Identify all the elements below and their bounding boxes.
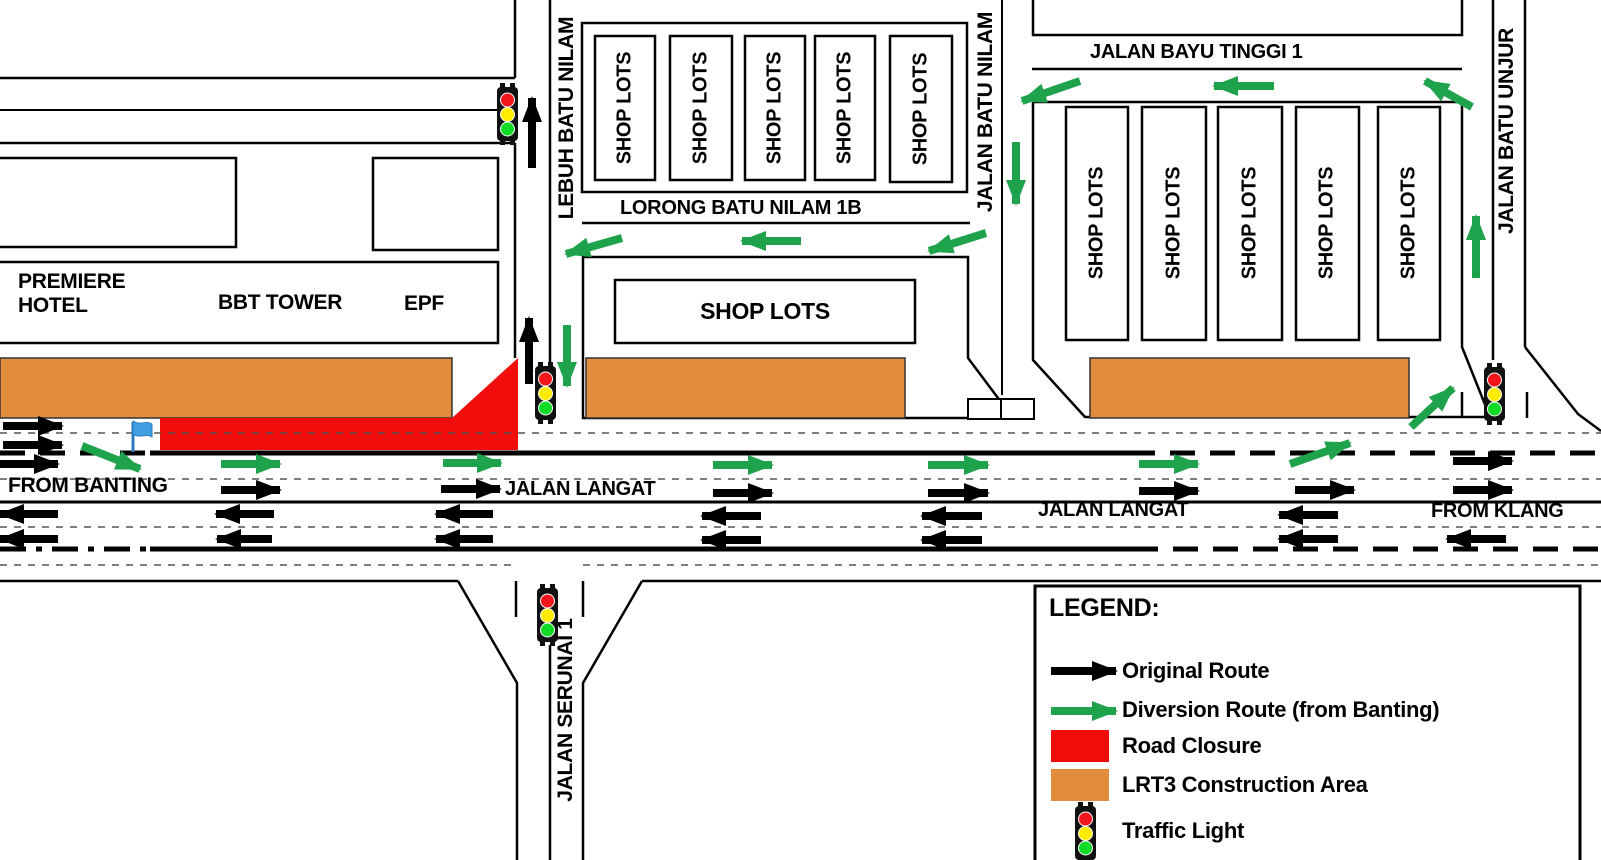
- building-box: [373, 158, 498, 250]
- legend-box: [1035, 586, 1580, 860]
- construction-area-swatch: [1051, 769, 1109, 801]
- label-shop-lots: SHOP LOTS: [1239, 167, 1262, 280]
- building-box: [0, 158, 236, 247]
- label-jalan-batu-nilam: JALAN BATU NILAM: [974, 12, 998, 212]
- label-shop-lots-center: SHOP LOTS: [615, 280, 915, 343]
- label-shop-lots: SHOP LOTS: [1086, 167, 1109, 280]
- diversion-start-flag-icon: [133, 421, 152, 452]
- label-bbt-tower: BBT TOWER: [218, 291, 342, 315]
- construction-area-west: [0, 358, 452, 418]
- label-shop-lots: SHOP LOTS: [614, 52, 637, 165]
- road-closure-swatch: [1051, 730, 1109, 762]
- building-box: [1033, 0, 1462, 35]
- label-lorong-batu-nilam-1b: LORONG BATU NILAM 1B: [620, 197, 861, 220]
- label-jalan-langat-west: JALAN LANGAT: [505, 478, 655, 501]
- traffic-light-icon: [535, 362, 556, 424]
- traffic-light-icon: [497, 83, 518, 145]
- label-shop-lots: SHOP LOTS: [690, 52, 713, 165]
- construction-area-middle: [586, 358, 905, 418]
- label-shop-lots: SHOP LOTS: [1398, 167, 1421, 280]
- construction-area-east: [1090, 358, 1409, 418]
- label-jalan-langat-east: JALAN LANGAT: [1038, 499, 1188, 522]
- label-shop-lots: SHOP LOTS: [834, 52, 857, 165]
- road-closure-triangle: [452, 358, 518, 418]
- label-from-klang: FROM KLANG: [1431, 500, 1564, 523]
- diversion-route-arrow: [929, 233, 986, 251]
- label-shop-lots: SHOP LOTS: [1163, 167, 1186, 280]
- label-jalan-serunai-1: JALAN SERUNAI 1: [554, 618, 578, 801]
- construction-areas-group: [0, 358, 1409, 418]
- diversion-route-arrow: [82, 446, 140, 469]
- label-from-banting: FROM BANTING: [8, 474, 168, 498]
- traffic-light-icon: [1075, 802, 1096, 860]
- legend-item-diversion-route: Diversion Route (from Banting): [1122, 697, 1439, 722]
- label-shop-lots: SHOP LOTS: [764, 52, 787, 165]
- legend-item-road-closure: Road Closure: [1122, 733, 1261, 758]
- road-closure-bar: [160, 418, 518, 450]
- traffic-light-icon: [1484, 363, 1505, 425]
- diversion-route-arrow: [1022, 81, 1080, 101]
- diversion-route-arrow: [566, 238, 622, 254]
- label-epf: EPF: [404, 292, 444, 316]
- road-map-canvas: [0, 0, 1601, 860]
- legend-item-original-route: Original Route: [1122, 658, 1269, 683]
- label-shop-lots: SHOP LOTS: [1316, 167, 1339, 280]
- legend-item-traffic-light: Traffic Light: [1122, 818, 1244, 843]
- legend-title: LEGEND:: [1049, 594, 1159, 623]
- legend-item-construction: LRT3 Construction Area: [1122, 772, 1368, 797]
- label-jalan-batu-unjur: JALAN BATU UNJUR: [1495, 28, 1519, 234]
- label-shop-lots: SHOP LOTS: [910, 53, 933, 166]
- label-jalan-bayu-tinggi-1: JALAN BAYU TINGGI 1: [1090, 41, 1302, 64]
- label-premiere-hotel: PREMIERE HOTEL: [18, 270, 125, 318]
- label-lebuh-batu-nilam: LEBUH BATU NILAM: [555, 17, 579, 219]
- diversion-map: PREMIERE HOTEL BBT TOWER EPF LORONG BATU…: [0, 0, 1601, 860]
